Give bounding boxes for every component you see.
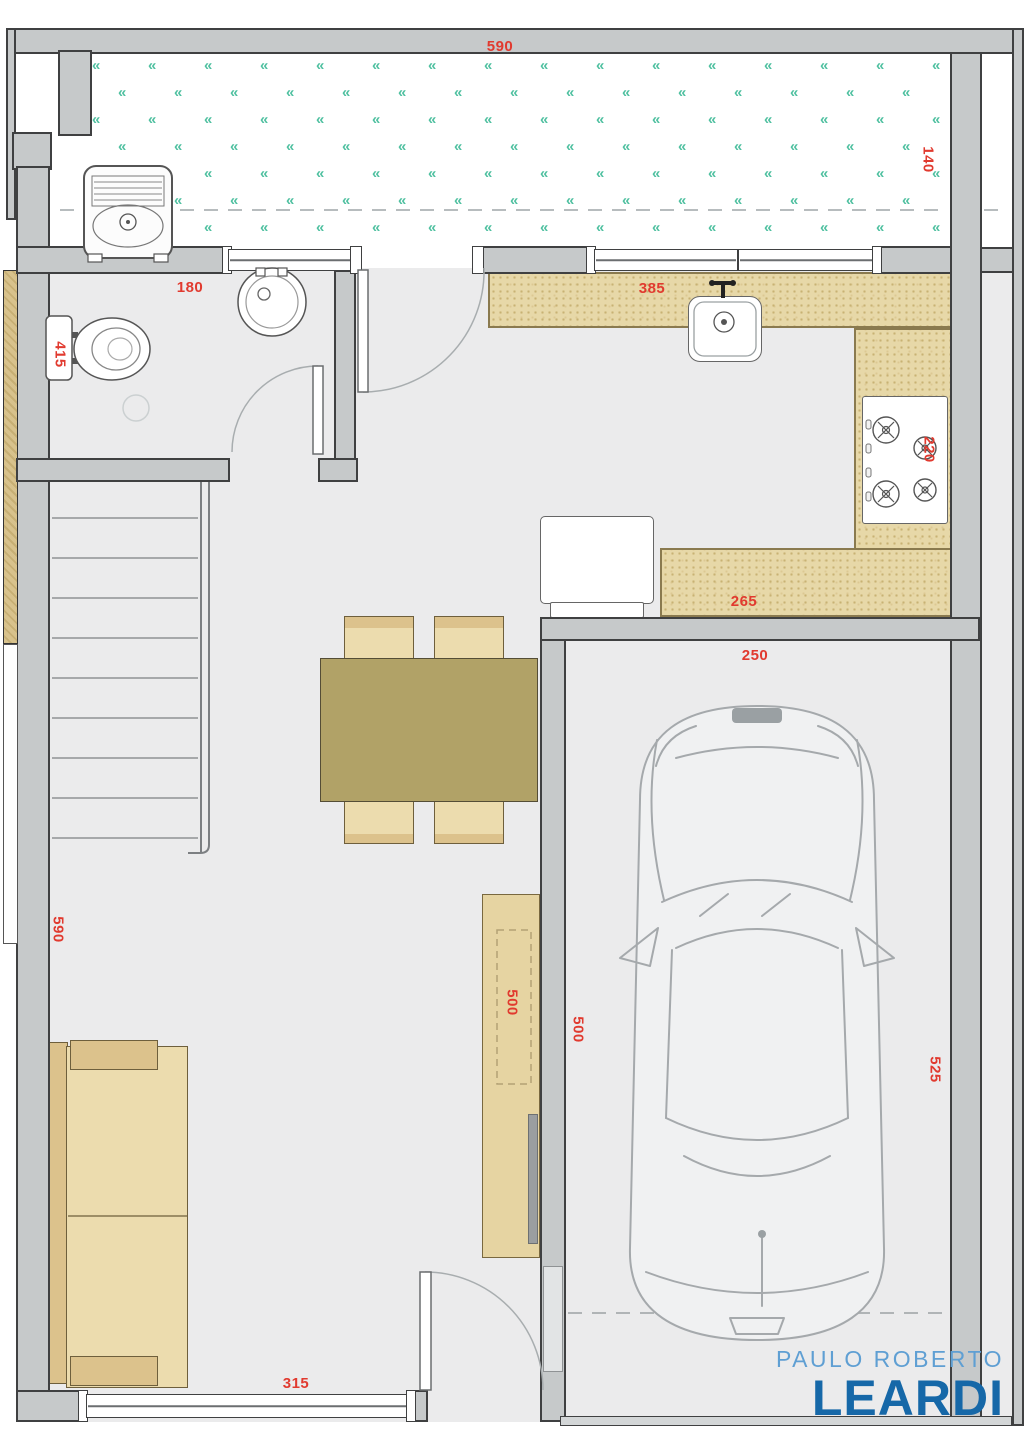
dim-kitchen-counter-top: 385 — [630, 281, 674, 296]
dim-bathroom-width: 180 — [168, 280, 212, 295]
dim-kitchen-counter-bottom: 265 — [722, 594, 766, 609]
hall-door — [358, 268, 484, 392]
bathroom-door — [232, 366, 323, 454]
staircase — [52, 482, 209, 853]
line-art-layer — [0, 0, 1024, 1454]
dim-garage-depth: 525 — [928, 1048, 943, 1092]
dim-garage-wall-length: 500 — [571, 1008, 586, 1052]
dim-tv-rack-length: 500 — [505, 981, 520, 1025]
dim-garage-width: 250 — [733, 648, 777, 663]
brand-line2: LEARDI — [624, 1375, 1004, 1423]
car-sunroof — [732, 708, 782, 723]
dim-yard-depth: 140 — [921, 138, 936, 182]
laundry-tub — [84, 166, 172, 262]
stove-knobs — [866, 420, 871, 501]
floor-drain — [123, 395, 149, 421]
entrance-door — [420, 1272, 543, 1390]
dim-living-width: 315 — [274, 1376, 318, 1391]
brand-line1: PAULO ROBERTO — [624, 1346, 1004, 1373]
car — [620, 706, 894, 1340]
floor-plan: ««««««««««««««««««««««««««««««««««««««««… — [0, 0, 1024, 1454]
dim-yard-width: 590 — [478, 39, 522, 54]
dim-living-depth: 590 — [51, 908, 66, 952]
dim-bathroom-depth: 415 — [53, 333, 68, 377]
brand-logo: PAULO ROBERTO LEARDI — [624, 1346, 1004, 1423]
dim-stove-counter: 220 — [922, 428, 937, 472]
kitchen-sink-detail — [694, 280, 756, 356]
round-washbasin — [238, 268, 306, 336]
